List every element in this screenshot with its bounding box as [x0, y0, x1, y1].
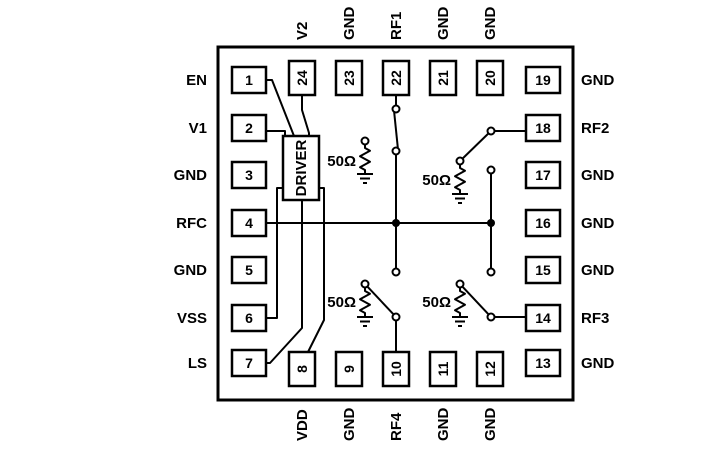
- resistor-label-rf4: 50Ω: [327, 294, 356, 311]
- pin-label-gnd-5: GND: [174, 262, 208, 279]
- pin-label-gnd-16: GND: [581, 215, 615, 232]
- switch-contact-rf4-port: [393, 314, 400, 321]
- pin-19: 19: [526, 67, 560, 93]
- pin-label-rf4: RF4: [388, 412, 405, 441]
- pin-number: 6: [245, 310, 253, 326]
- pin-13: 13: [526, 350, 560, 376]
- wire-driver-to-vss: [266, 188, 283, 318]
- pin-3: 3: [232, 162, 266, 188]
- pin-6: 6: [232, 305, 266, 331]
- pin-label-ls: LS: [188, 355, 207, 372]
- switch-contact: [362, 138, 369, 145]
- switch-contact-rf1-bus: [393, 148, 400, 155]
- pin-2: 2: [232, 115, 266, 141]
- switch-arm-rf3: [462, 287, 488, 315]
- resistor-label-rf1: 50Ω: [327, 153, 356, 170]
- diagram-svg: 50Ω 50Ω 50Ω 50Ω: [0, 0, 706, 459]
- pin-number: 17: [535, 167, 551, 183]
- pin-number: 5: [245, 262, 253, 278]
- resistor-zigzag: [455, 165, 465, 195]
- pin-number: 15: [535, 262, 551, 278]
- ground-symbol: [357, 174, 373, 183]
- pin-23: 23: [336, 61, 362, 95]
- pin-label-gnd-12: GND: [482, 408, 499, 442]
- ground-symbol: [452, 317, 468, 326]
- pin-number: 2: [245, 120, 253, 136]
- pin-18: 18: [526, 115, 560, 141]
- pin-11: 11: [430, 352, 456, 386]
- switch-contact-rf3-bus: [488, 269, 495, 276]
- switch-contact-rf2-port: [488, 128, 495, 135]
- switch-contact-rf4-bus: [393, 269, 400, 276]
- pin-1: 1: [232, 67, 266, 93]
- shunt-resistor-rf4: [357, 281, 373, 327]
- pin-label-gnd-23: GND: [341, 7, 358, 41]
- switch-arm-rf4: [367, 287, 393, 315]
- shunt-resistor-rf3: [452, 281, 468, 327]
- pin-label-rfc: RFC: [176, 215, 207, 232]
- pin-number: 3: [245, 167, 253, 183]
- pin-number: 19: [535, 72, 551, 88]
- pin-14: 14: [526, 305, 560, 331]
- driver-label: DRIVER: [293, 140, 310, 197]
- resistor-zigzag: [360, 288, 370, 318]
- shunt-resistor-rf1: [357, 138, 373, 184]
- pin-number: 12: [482, 361, 498, 377]
- pin-label-rf1: RF1: [388, 12, 405, 40]
- pin-label-gnd-17: GND: [581, 167, 615, 184]
- pin-number: 23: [341, 70, 357, 86]
- ground-symbol: [357, 317, 373, 326]
- pin-number: 9: [341, 365, 357, 373]
- pin-label-gnd-11: GND: [435, 408, 452, 442]
- pin-number: 22: [388, 70, 404, 86]
- pin-label-gnd-19: GND: [581, 72, 615, 89]
- pin-label-gnd-3: GND: [174, 167, 208, 184]
- pin-number: 4: [245, 215, 253, 231]
- switch-contact-rf1-port: [393, 106, 400, 113]
- pin-8: 8: [289, 352, 315, 386]
- resistor-label-rf2: 50Ω: [422, 172, 451, 189]
- pin-4: 4: [232, 210, 266, 236]
- wire-v2-to-driver: [302, 95, 309, 136]
- pin-15: 15: [526, 257, 560, 283]
- pin-label-rf3: RF3: [581, 310, 609, 327]
- switch-contact-rf2-bus: [488, 167, 495, 174]
- wire-driver-to-vdd: [308, 188, 324, 352]
- pin-number: 1: [245, 72, 253, 88]
- shunt-resistor-rf2: [452, 158, 468, 204]
- pin-16: 16: [526, 210, 560, 236]
- pin-number: 24: [294, 70, 310, 86]
- pin-label-v2: V2: [294, 22, 311, 40]
- pin-number: 21: [435, 70, 451, 86]
- switch-arm-rf2: [463, 133, 489, 158]
- switch-contact: [457, 281, 464, 288]
- pin-number: 14: [535, 310, 551, 326]
- pin-number: 18: [535, 120, 551, 136]
- pin-label-en: EN: [186, 72, 207, 89]
- switch-contact: [362, 281, 369, 288]
- pin-22: 22: [383, 61, 409, 95]
- pin-label-rf2: RF2: [581, 120, 609, 137]
- pin-label-v1: V1: [189, 120, 207, 137]
- pin-12: 12: [477, 352, 503, 386]
- pin-9: 9: [336, 352, 362, 386]
- pin-label-vdd: VDD: [294, 409, 311, 441]
- switch-contact: [457, 158, 464, 165]
- pin-number: 8: [294, 365, 310, 373]
- ic-pin-diagram: 50Ω 50Ω 50Ω 50Ω: [0, 0, 706, 459]
- resistor-label-rf3: 50Ω: [422, 294, 451, 311]
- resistor-zigzag: [360, 145, 370, 175]
- pin-label-vss: VSS: [177, 310, 207, 327]
- wire-driver-to-ls: [266, 200, 302, 363]
- pin-number: 20: [482, 70, 498, 86]
- switch-arm-rf1: [394, 112, 398, 147]
- pin-label-gnd-13: GND: [581, 355, 615, 372]
- pin-label-gnd-9: GND: [341, 408, 358, 442]
- pin-number: 7: [245, 355, 253, 371]
- pin-5: 5: [232, 257, 266, 283]
- resistor-zigzag: [455, 288, 465, 318]
- pin-7: 7: [232, 350, 266, 376]
- pin-number: 16: [535, 215, 551, 231]
- switch-contact-rf3-port: [488, 314, 495, 321]
- pin-24: 24: [289, 61, 315, 95]
- junction-dot-left: [392, 219, 400, 227]
- pin-number: 13: [535, 355, 551, 371]
- pin-20: 20: [477, 61, 503, 95]
- pin-label-gnd-21: GND: [435, 7, 452, 41]
- pin-21: 21: [430, 61, 456, 95]
- pin-17: 17: [526, 162, 560, 188]
- pin-label-gnd-20: GND: [482, 7, 499, 41]
- pin-label-gnd-15: GND: [581, 262, 615, 279]
- pin-number: 10: [388, 361, 404, 377]
- pin-10: 10: [383, 352, 409, 386]
- pin-number: 11: [435, 361, 451, 376]
- junction-dot-right: [487, 219, 495, 227]
- ground-symbol: [452, 194, 468, 203]
